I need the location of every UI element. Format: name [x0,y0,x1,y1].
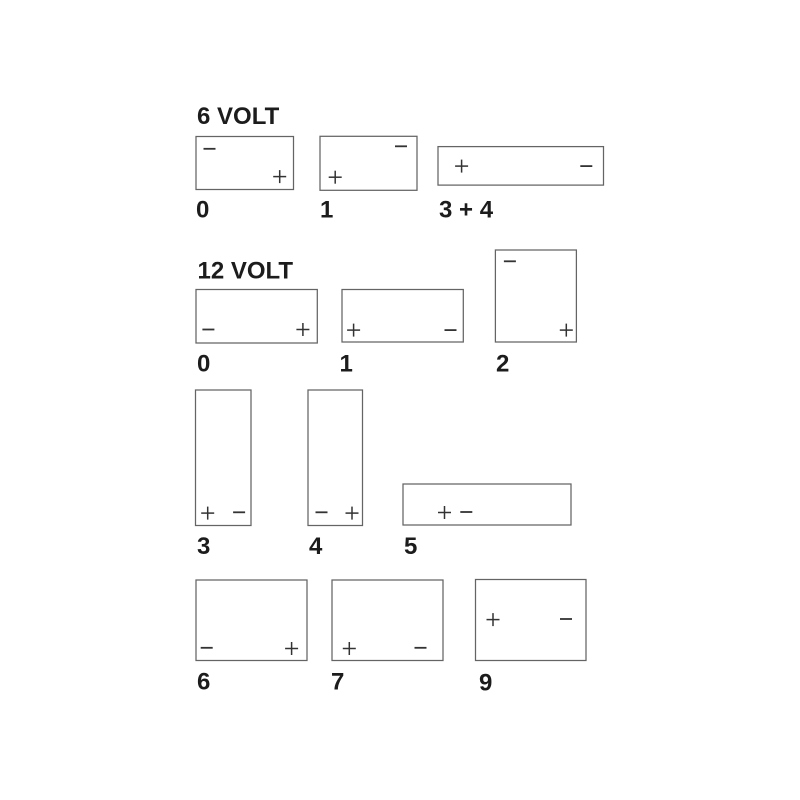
svg-text:2: 2 [496,351,509,378]
svg-text:7: 7 [331,669,344,696]
svg-text:6 VOLT: 6 VOLT [197,103,280,130]
svg-text:1: 1 [340,351,353,378]
svg-text:0: 0 [197,351,210,378]
svg-text:1: 1 [320,197,333,224]
svg-text:4: 4 [309,533,323,560]
svg-text:3: 3 [197,533,210,560]
svg-text:6: 6 [197,669,210,696]
svg-text:3 + 4: 3 + 4 [439,197,494,224]
svg-text:0: 0 [196,197,209,224]
svg-text:9: 9 [479,670,492,697]
svg-text:12 VOLT: 12 VOLT [198,258,294,285]
svg-text:5: 5 [404,533,417,560]
